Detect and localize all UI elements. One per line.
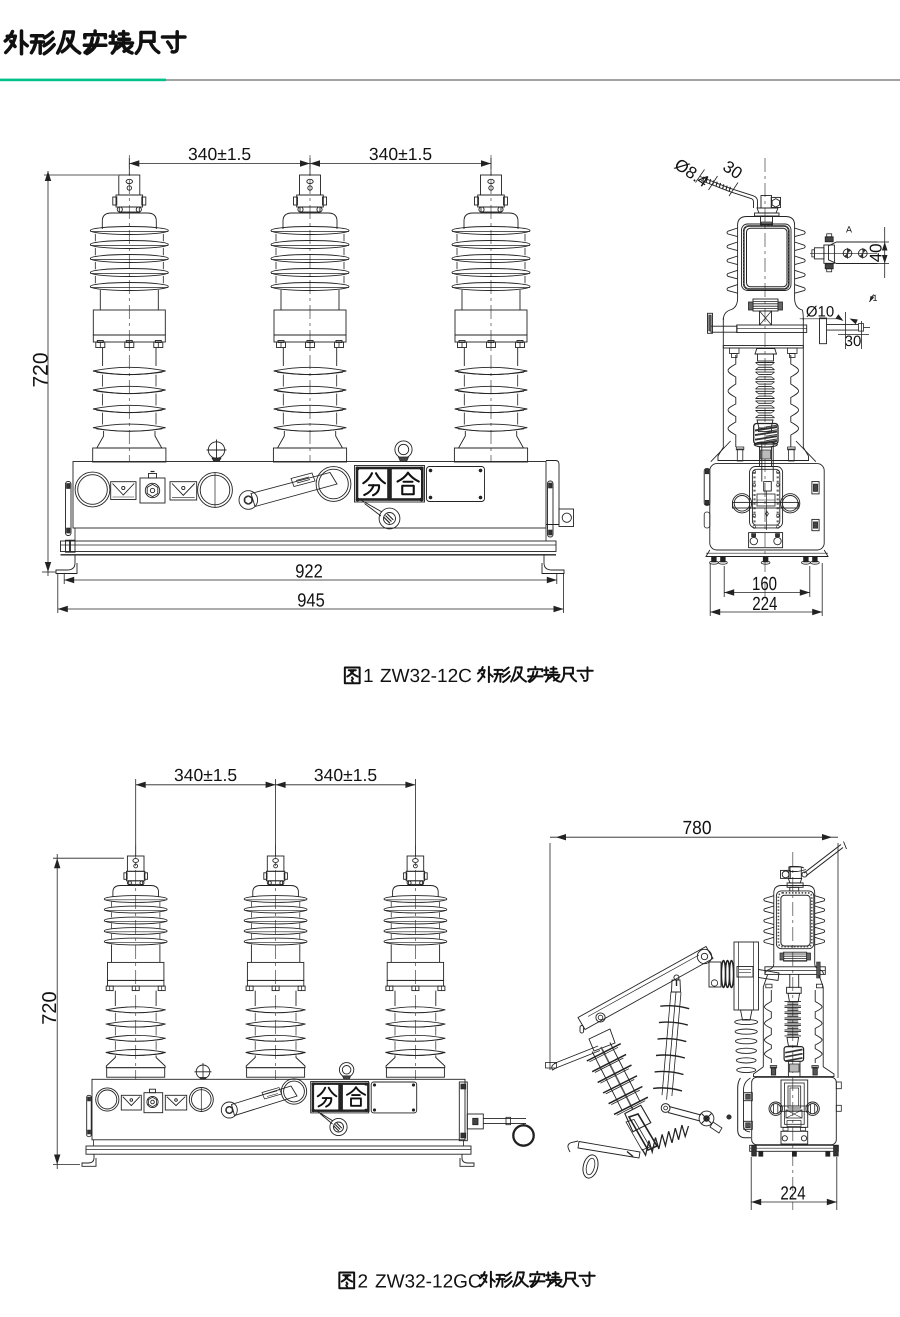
svg-text:2: 2 [358, 1272, 369, 1293]
svg-text:ZW32-12GC: ZW32-12GC [375, 1272, 482, 1293]
svg-text:40: 40 [867, 243, 886, 262]
svg-text:340±1.5: 340±1.5 [174, 765, 237, 785]
svg-text:340±1.5: 340±1.5 [314, 765, 377, 785]
svg-text:945: 945 [297, 591, 325, 612]
svg-text:Ø10: Ø10 [806, 304, 834, 321]
svg-text:720: 720 [39, 991, 61, 1024]
svg-text:780: 780 [683, 818, 712, 839]
svg-text:340±1.5: 340±1.5 [188, 144, 251, 164]
svg-text:1: 1 [363, 666, 374, 687]
svg-text:ZW32-12C: ZW32-12C [380, 666, 472, 687]
svg-text:922: 922 [295, 562, 323, 583]
svg-text:160: 160 [752, 574, 777, 595]
svg-text:224: 224 [752, 594, 778, 615]
svg-text:1: 1 [872, 293, 877, 303]
svg-text:A: A [846, 225, 852, 235]
svg-text:340±1.5: 340±1.5 [369, 144, 432, 164]
svg-text:720: 720 [30, 352, 53, 387]
svg-text:30: 30 [845, 333, 862, 350]
svg-text:224: 224 [780, 1184, 806, 1205]
